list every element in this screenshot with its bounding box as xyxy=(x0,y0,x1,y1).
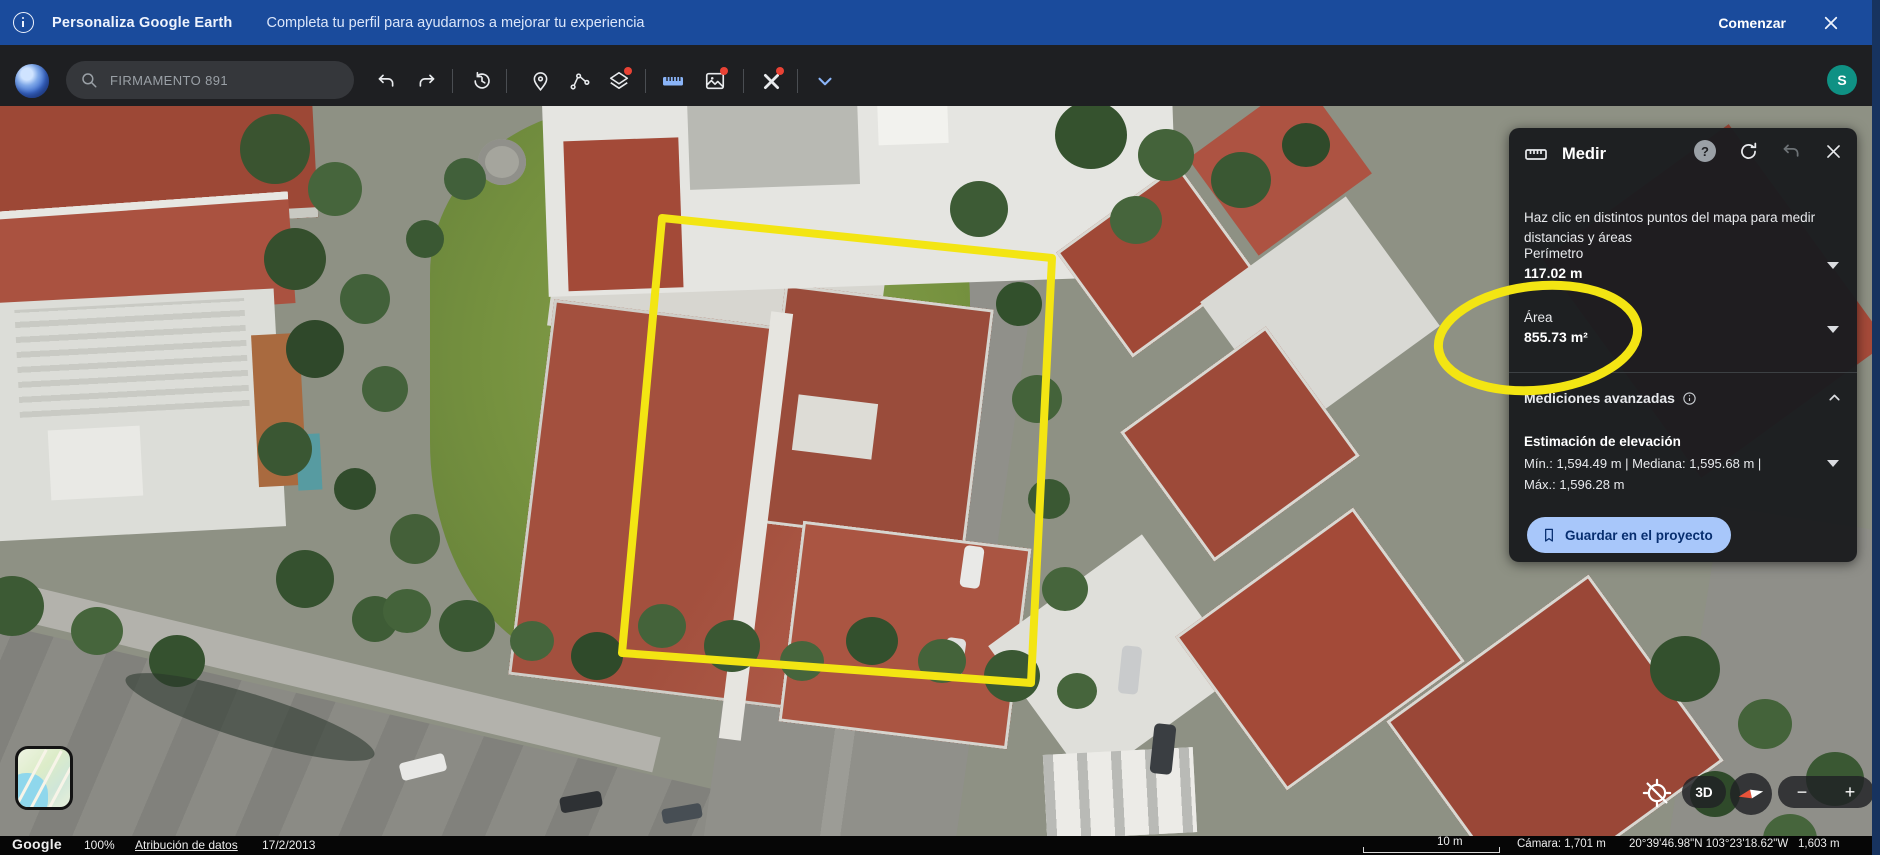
historical-imagery-icon xyxy=(471,70,493,92)
measure-tool-button[interactable] xyxy=(653,61,693,101)
refresh-icon xyxy=(1738,141,1759,162)
imagery-zoom-level: 100% xyxy=(84,838,115,852)
redo-icon xyxy=(416,71,437,92)
ruler-icon xyxy=(1524,142,1548,166)
comenzar-button[interactable]: Comenzar xyxy=(1718,15,1786,31)
elevation-line2: Máx.: 1,596.28 m xyxy=(1524,477,1624,492)
data-attribution-link[interactable]: Atribución de datos xyxy=(135,838,238,852)
map-roof-right-8 xyxy=(1386,574,1723,836)
toolbar-separator xyxy=(645,69,646,93)
camera-altitude: Cámara: 1,701 m xyxy=(1517,838,1606,850)
map-trees-left-cluster xyxy=(240,114,310,184)
google-earth-logo xyxy=(15,64,49,98)
advanced-label: Mediciones avanzadas xyxy=(1524,390,1675,406)
help-button[interactable]: ? xyxy=(1694,140,1716,162)
scale-bar xyxy=(1363,847,1500,853)
ground-elevation: 1,603 m xyxy=(1798,838,1840,850)
zoom-pill: − + xyxy=(1778,776,1874,808)
map-trees-right-street xyxy=(950,181,1008,237)
elevation-line1: Mín.: 1,594.49 m | Mediana: 1,595.68 m | xyxy=(1524,456,1804,471)
notification-dot xyxy=(720,67,728,75)
toolbar-separator xyxy=(743,69,744,93)
toolbar-separator xyxy=(797,69,798,93)
close-panel-button[interactable] xyxy=(1824,142,1843,161)
add-placemark-button[interactable] xyxy=(520,61,560,101)
map-trees-bottom-right xyxy=(1650,636,1720,702)
undo-measure-button[interactable] xyxy=(1781,141,1802,162)
zoom-out-button[interactable]: − xyxy=(1778,782,1826,803)
map-property-patio-square xyxy=(792,394,878,459)
perimeter-value: 117.02 m xyxy=(1524,265,1840,281)
overview-minimap[interactable] xyxy=(15,746,73,810)
info-icon xyxy=(13,12,34,33)
historical-imagery-button[interactable] xyxy=(462,61,502,101)
toolbar-expand-button[interactable] xyxy=(805,61,845,101)
search-input[interactable]: FIRMAMENTO 891 xyxy=(66,61,354,99)
window-edge-sliver xyxy=(1872,0,1880,855)
promo-banner: Personaliza Google Earth Completa tu per… xyxy=(0,0,1880,45)
notification-dot xyxy=(776,67,784,75)
elevation-expand-chevron[interactable] xyxy=(1827,460,1839,467)
map-pool xyxy=(296,433,323,490)
map-fountain xyxy=(478,139,526,185)
advanced-collapse-chevron[interactable] xyxy=(1826,389,1843,406)
account-avatar[interactable]: S xyxy=(1827,65,1857,95)
save-button-label: Guardar en el proyecto xyxy=(1565,528,1713,543)
area-label: Área xyxy=(1524,310,1840,325)
avatar-initial: S xyxy=(1837,72,1846,88)
placemark-pin-icon xyxy=(530,71,551,92)
search-value: FIRMAMENTO 891 xyxy=(110,73,228,88)
layers-button[interactable] xyxy=(599,61,639,101)
banner-close-button[interactable] xyxy=(1822,14,1840,32)
add-path-button[interactable] xyxy=(560,61,600,101)
info-icon xyxy=(1682,391,1697,406)
ruler-icon-active xyxy=(661,69,685,93)
undo-icon-disabled xyxy=(1781,141,1802,162)
undo-icon xyxy=(376,71,397,92)
toolbar-separator xyxy=(506,69,507,93)
undo-button[interactable] xyxy=(366,61,406,101)
close-icon xyxy=(1824,142,1843,161)
area-value: 855.73 m² xyxy=(1524,329,1840,345)
cursor-coordinates: 20°39'46.98"N 103°23'18.62"W xyxy=(1629,838,1788,850)
projects-media-button[interactable] xyxy=(695,61,735,101)
perimeter-row: Perímetro 117.02 m xyxy=(1524,246,1840,281)
measure-panel-header: Medir ? xyxy=(1509,128,1857,180)
area-row: Área 855.73 m² xyxy=(1524,310,1840,345)
restart-measure-button[interactable] xyxy=(1738,141,1759,162)
panel-title: Medir xyxy=(1562,145,1606,164)
panel-divider xyxy=(1509,372,1857,373)
perimeter-expand-chevron[interactable] xyxy=(1827,262,1839,269)
elevation-title: Estimación de elevación xyxy=(1524,434,1681,449)
drawing-tools-button[interactable] xyxy=(751,61,791,101)
imagery-date: 17/2/2013 xyxy=(262,838,315,852)
google-wordmark: Google xyxy=(12,836,62,852)
measure-panel: Medir ? Haz clic en distintos puntos del… xyxy=(1509,128,1857,562)
help-glyph: ? xyxy=(1701,144,1709,159)
3d-toggle-button[interactable]: 3D xyxy=(1682,776,1726,808)
advanced-measurements-row: Mediciones avanzadas xyxy=(1524,390,1840,406)
toolbar-separator xyxy=(452,69,453,93)
close-icon xyxy=(1822,14,1840,32)
main-toolbar: FIRMAMENTO 891 xyxy=(0,45,1880,106)
path-icon xyxy=(569,70,591,92)
compass-needle-icon xyxy=(1733,776,1769,812)
map-facade-white xyxy=(1043,747,1197,836)
redo-button[interactable] xyxy=(406,61,446,101)
map-property-roof-bottomright xyxy=(779,521,1032,750)
notification-dot xyxy=(624,67,632,75)
measure-instruction: Haz clic en distintos puntos del mapa pa… xyxy=(1524,208,1840,249)
banner-title: Personaliza Google Earth xyxy=(52,15,232,31)
banner-subtitle: Completa tu perfil para ayudarnos a mejo… xyxy=(266,15,644,31)
search-icon xyxy=(80,71,98,89)
status-bar: Google 100% Atribución de datos 17/2/201… xyxy=(0,836,1880,855)
zoom-in-button[interactable]: + xyxy=(1826,782,1874,803)
compass-control[interactable] xyxy=(1730,773,1772,815)
chevron-down-icon xyxy=(814,70,836,92)
google-earth-window: 3D − + Personaliza Google Earth Completa… xyxy=(0,0,1880,855)
perimeter-label: Perímetro xyxy=(1524,246,1840,261)
location-off-icon[interactable] xyxy=(1642,778,1672,813)
map-trees-street-row xyxy=(0,576,44,636)
map-building-white-left xyxy=(0,288,286,541)
bookmark-icon xyxy=(1541,527,1557,543)
3d-label: 3D xyxy=(1695,785,1712,800)
save-to-project-button[interactable]: Guardar en el proyecto xyxy=(1527,517,1731,553)
area-expand-chevron[interactable] xyxy=(1827,326,1839,333)
